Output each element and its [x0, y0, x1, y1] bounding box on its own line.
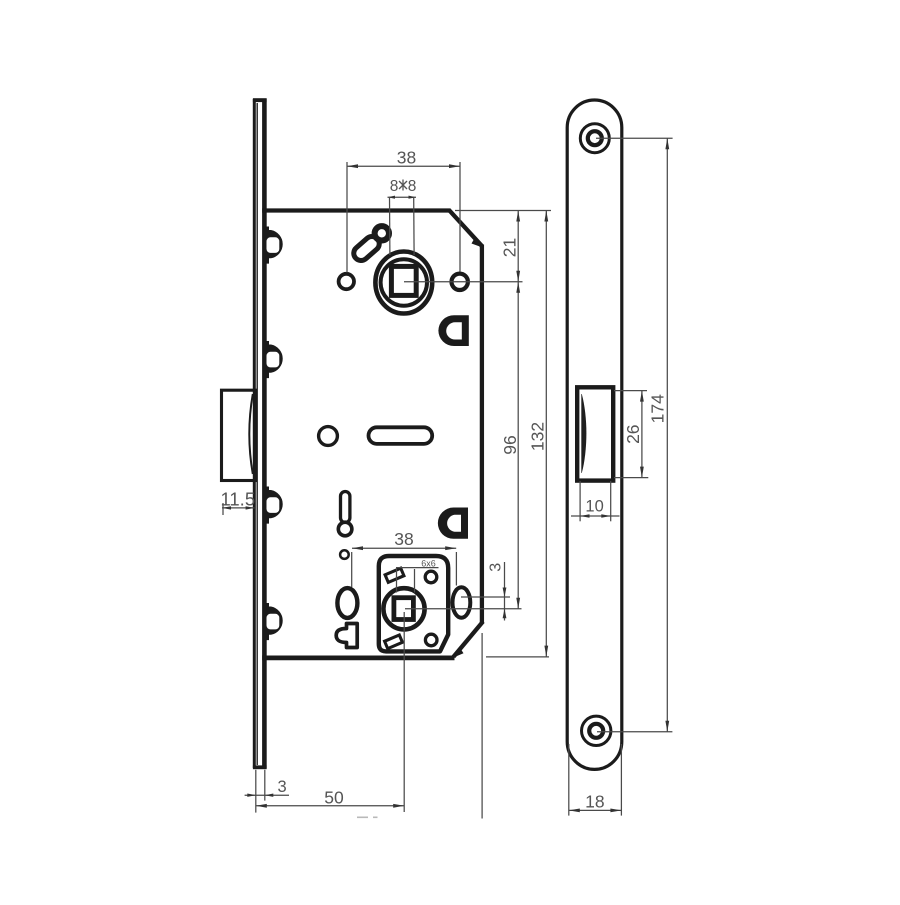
svg-text:8: 8 [408, 178, 417, 195]
svg-text:11.5: 11.5 [220, 489, 255, 510]
svg-text:8: 8 [390, 178, 399, 195]
svg-text:3: 3 [278, 778, 287, 796]
svg-text:50: 50 [324, 788, 344, 808]
svg-text:174: 174 [648, 394, 668, 423]
svg-text:6x6: 6x6 [421, 559, 436, 569]
svg-text:26: 26 [623, 424, 643, 443]
svg-text:3: 3 [488, 563, 505, 572]
svg-text:132: 132 [528, 422, 548, 451]
svg-text:96: 96 [500, 435, 520, 454]
svg-text:38: 38 [394, 529, 413, 549]
svg-text:21: 21 [500, 238, 520, 257]
svg-text:10: 10 [585, 498, 603, 516]
svg-text:18: 18 [585, 792, 604, 812]
svg-text:38: 38 [397, 148, 416, 168]
